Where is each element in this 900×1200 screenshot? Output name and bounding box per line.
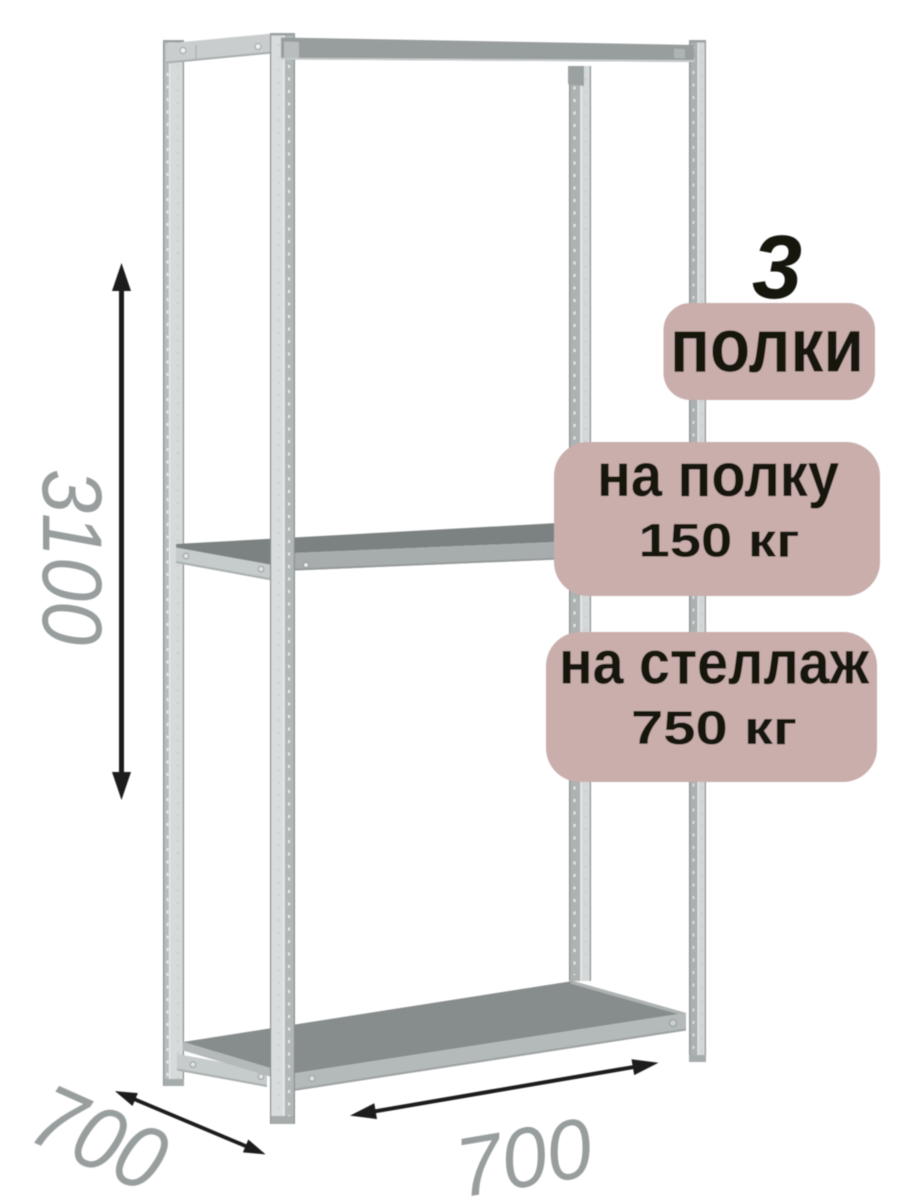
svg-text:на полку: на полку — [597, 441, 839, 509]
svg-text:3100: 3100 — [25, 469, 119, 645]
svg-text:150 кг: 150 кг — [639, 514, 800, 567]
svg-text:полки: полки — [670, 304, 864, 389]
svg-text:750 кг: 750 кг — [631, 701, 797, 754]
svg-text:на стеллаж: на стеллаж — [559, 629, 870, 697]
